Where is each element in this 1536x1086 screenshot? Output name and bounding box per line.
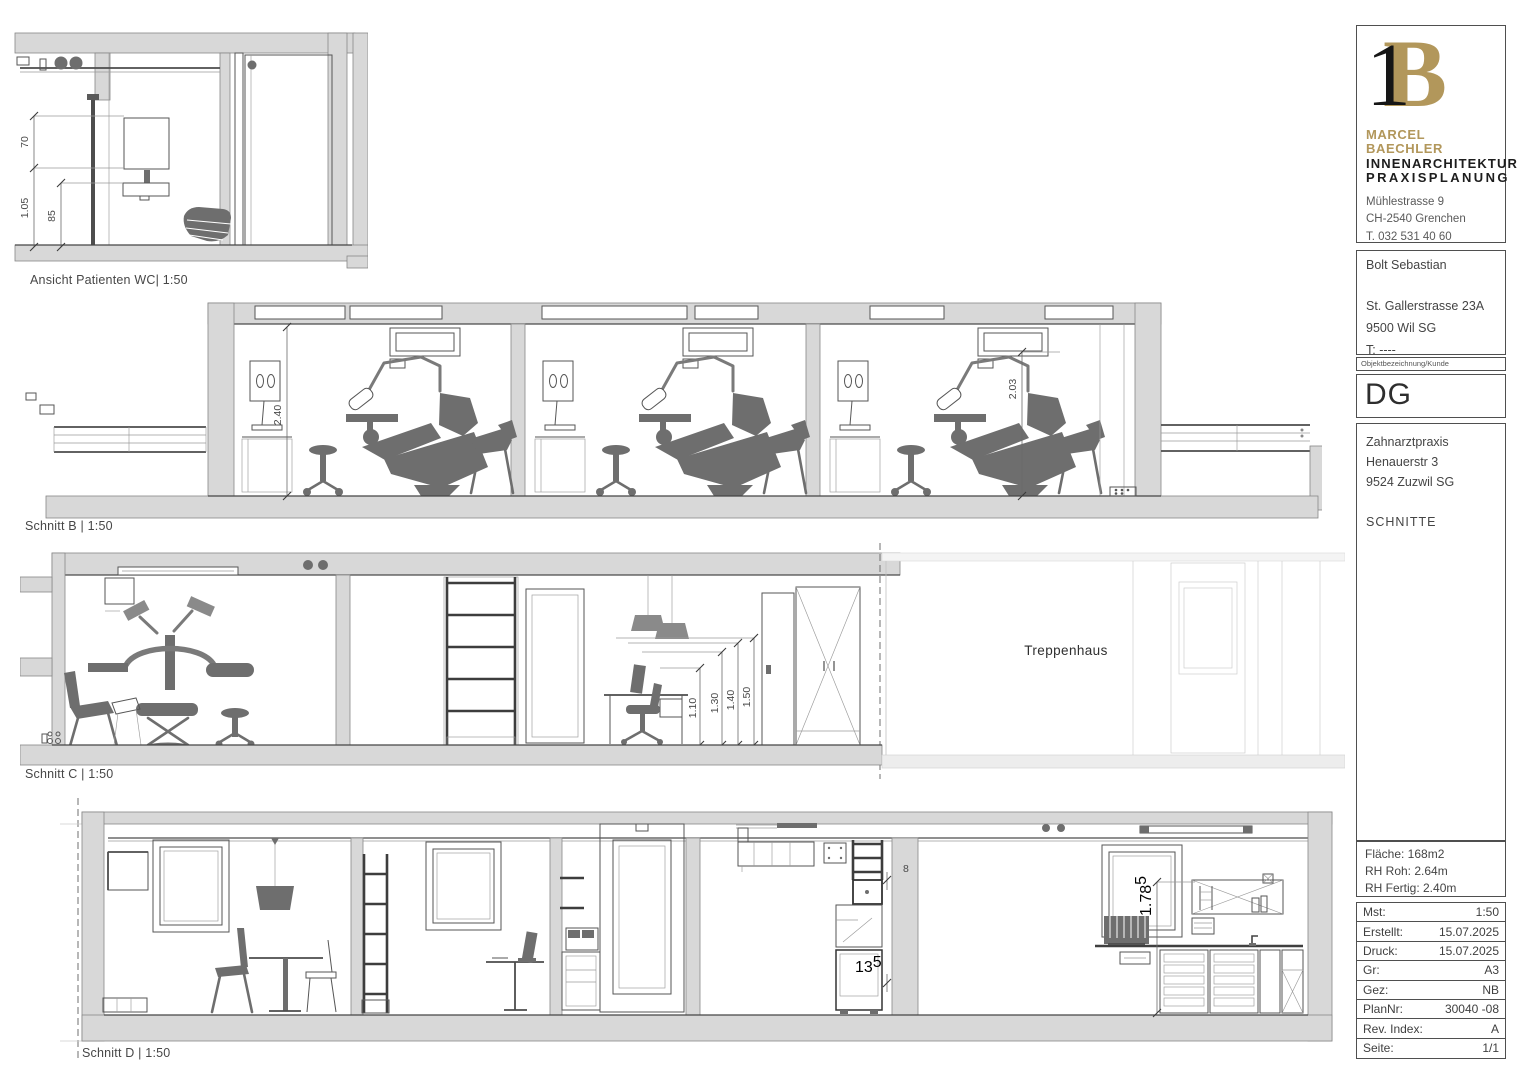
schnitt-c-label: Schnitt C | 1:50	[25, 767, 113, 781]
dim-203: 2.03	[1007, 379, 1019, 400]
architect-discipline: INNENARCHITEKTUR	[1366, 157, 1496, 171]
table-row-druck: Druck:15.07.2025	[1357, 942, 1505, 961]
row-label: Gr:	[1363, 963, 1380, 977]
rh-fertig: RH Fertig: 2.40m	[1365, 880, 1497, 897]
schnitt-d-drawing: 8 135	[60, 798, 1335, 1065]
schnitt-b-drawing: 2.40 2.03	[22, 297, 1322, 538]
sink	[123, 170, 169, 200]
stairwell-area: Treppenhaus	[886, 561, 1320, 755]
toilet	[184, 207, 231, 241]
dim-8: 8	[903, 863, 909, 875]
room3-door	[1100, 324, 1124, 496]
client-caption-strip: Objektbezeichnung/Kunde	[1356, 357, 1506, 371]
table-row-plannr: PlanNr:30040 -08	[1357, 1000, 1505, 1019]
dim-105: 1.05	[19, 198, 31, 219]
project-name: Zahnarztpraxis	[1366, 432, 1496, 452]
logo: B 1	[1366, 34, 1496, 128]
ladder-shelf	[362, 854, 389, 1013]
workstation	[604, 575, 689, 745]
dental-unit-front	[42, 596, 255, 749]
table-row-revindex: Rev. Index:A	[1357, 1019, 1505, 1038]
project-street: Henauerstr 3	[1366, 452, 1496, 472]
architect-logo-box: B 1 MARCEL BAECHLER INNENARCHITEKTUR PRA…	[1356, 25, 1506, 243]
mirror	[124, 118, 169, 169]
architect-phone: T. 032 531 40 60	[1366, 229, 1496, 246]
dim-13-sup: 5	[873, 954, 882, 971]
row-value: 1/1	[1482, 1041, 1499, 1055]
floor-code-box: DG	[1356, 374, 1506, 418]
dim-178: 1.78	[1138, 885, 1155, 916]
wc-floor	[15, 245, 368, 268]
kitchen: 1.785	[1042, 824, 1303, 1017]
x-wardrobe	[796, 587, 860, 745]
client-city: 9500 Wil SG	[1366, 318, 1496, 340]
row-label: Rev. Index:	[1363, 1022, 1423, 1036]
client-name: Bolt Sebastian	[1366, 258, 1496, 272]
dim-85: 85	[46, 210, 58, 222]
dim-13: 13	[855, 959, 873, 976]
architect-specialty: PRAXISPLANUNG	[1366, 171, 1496, 185]
wc-dimensions: 70 1.05 85	[19, 112, 124, 251]
wc-elevation-drawing: 70 1.05 85	[13, 30, 368, 279]
schnitt-c-drawing: 1.10 1.30 1.40 1.50 Treppenhaus	[20, 543, 1345, 786]
dim-178-sup: 5	[1133, 876, 1150, 885]
tall-shelf	[444, 577, 518, 745]
architect-name: MARCEL BAECHLER	[1366, 128, 1496, 157]
row-value: 1:50	[1476, 905, 1499, 919]
project-city: 9524 Zuzwil SG	[1366, 472, 1496, 492]
schnitt-b-label: Schnitt B | 1:50	[25, 519, 113, 533]
break-room	[103, 838, 336, 1012]
wc-door	[245, 55, 332, 245]
stairwell-label: Treppenhaus	[1024, 643, 1107, 658]
area-value: Fläche: 168m2	[1365, 846, 1497, 863]
tall-door	[600, 824, 684, 1012]
row-label: Mst:	[1363, 905, 1386, 919]
wall-cabinet	[105, 578, 134, 611]
ceiling-lights	[17, 57, 220, 73]
row-value: 15.07.2025	[1439, 925, 1499, 939]
schnitt-b-floor	[46, 487, 1318, 518]
treatment-room-d: 8 135	[736, 823, 909, 1014]
svg-text:1.785: 1.785	[1133, 876, 1155, 916]
dim-240: 2.40	[272, 405, 284, 426]
row-label: Druck:	[1363, 944, 1398, 958]
table-row-mst: Mst:1:50	[1357, 903, 1505, 922]
architect-city: CH-2540 Grenchen	[1366, 211, 1496, 228]
row-value: A3	[1484, 963, 1499, 977]
logo-monogram-1: 1	[1366, 30, 1411, 122]
row-value: NB	[1482, 983, 1499, 997]
rh-roh: RH Roh: 2.64m	[1365, 863, 1497, 880]
plan-type: SCHNITTE	[1366, 512, 1496, 532]
project-box: Zahnarztpraxis Henauerstr 3 9524 Zuzwil …	[1356, 423, 1506, 841]
row-value: 30040 -08	[1445, 1002, 1499, 1016]
dim-140: 1.40	[725, 690, 737, 711]
dim-130: 1.30	[709, 693, 721, 714]
row-value: A	[1491, 1022, 1499, 1036]
wc-view-label: Ansicht Patienten WC| 1:50	[30, 273, 188, 287]
client-street: St. Gallerstrasse 23A	[1366, 296, 1496, 318]
row-value: 15.07.2025	[1439, 944, 1499, 958]
dim-110: 1.10	[687, 698, 699, 719]
table-row-seite: Seite:1/1	[1357, 1039, 1505, 1058]
architect-street: Mühlestrasse 9	[1366, 194, 1496, 211]
schnitt-d-label: Schnitt D | 1:50	[82, 1046, 170, 1060]
office-room	[426, 842, 544, 1010]
area-info-box: Fläche: 168m2 RH Roh: 2.64m RH Fertig: 2…	[1356, 841, 1506, 897]
dim-150: 1.50	[741, 687, 753, 708]
row-label: Seite:	[1363, 1041, 1394, 1055]
row-label: Gez:	[1363, 983, 1388, 997]
row-label: PlanNr:	[1363, 1002, 1403, 1016]
row-label: Erstellt:	[1363, 925, 1403, 939]
table-row-gez: Gez:NB	[1357, 981, 1505, 1000]
plan-details-table: Mst:1:50 Erstellt:15.07.2025 Druck:15.07…	[1356, 902, 1506, 1059]
client-box: Bolt Sebastian St. Gallerstrasse 23A 950…	[1356, 250, 1506, 355]
table-row-erstellt: Erstellt:15.07.2025	[1357, 922, 1505, 941]
dim-70: 70	[19, 136, 31, 148]
door-1	[526, 589, 584, 743]
table-row-gr: Gr:A3	[1357, 961, 1505, 980]
door-2	[762, 593, 794, 745]
balcony-left	[26, 393, 206, 452]
utility-zone	[560, 878, 600, 1010]
